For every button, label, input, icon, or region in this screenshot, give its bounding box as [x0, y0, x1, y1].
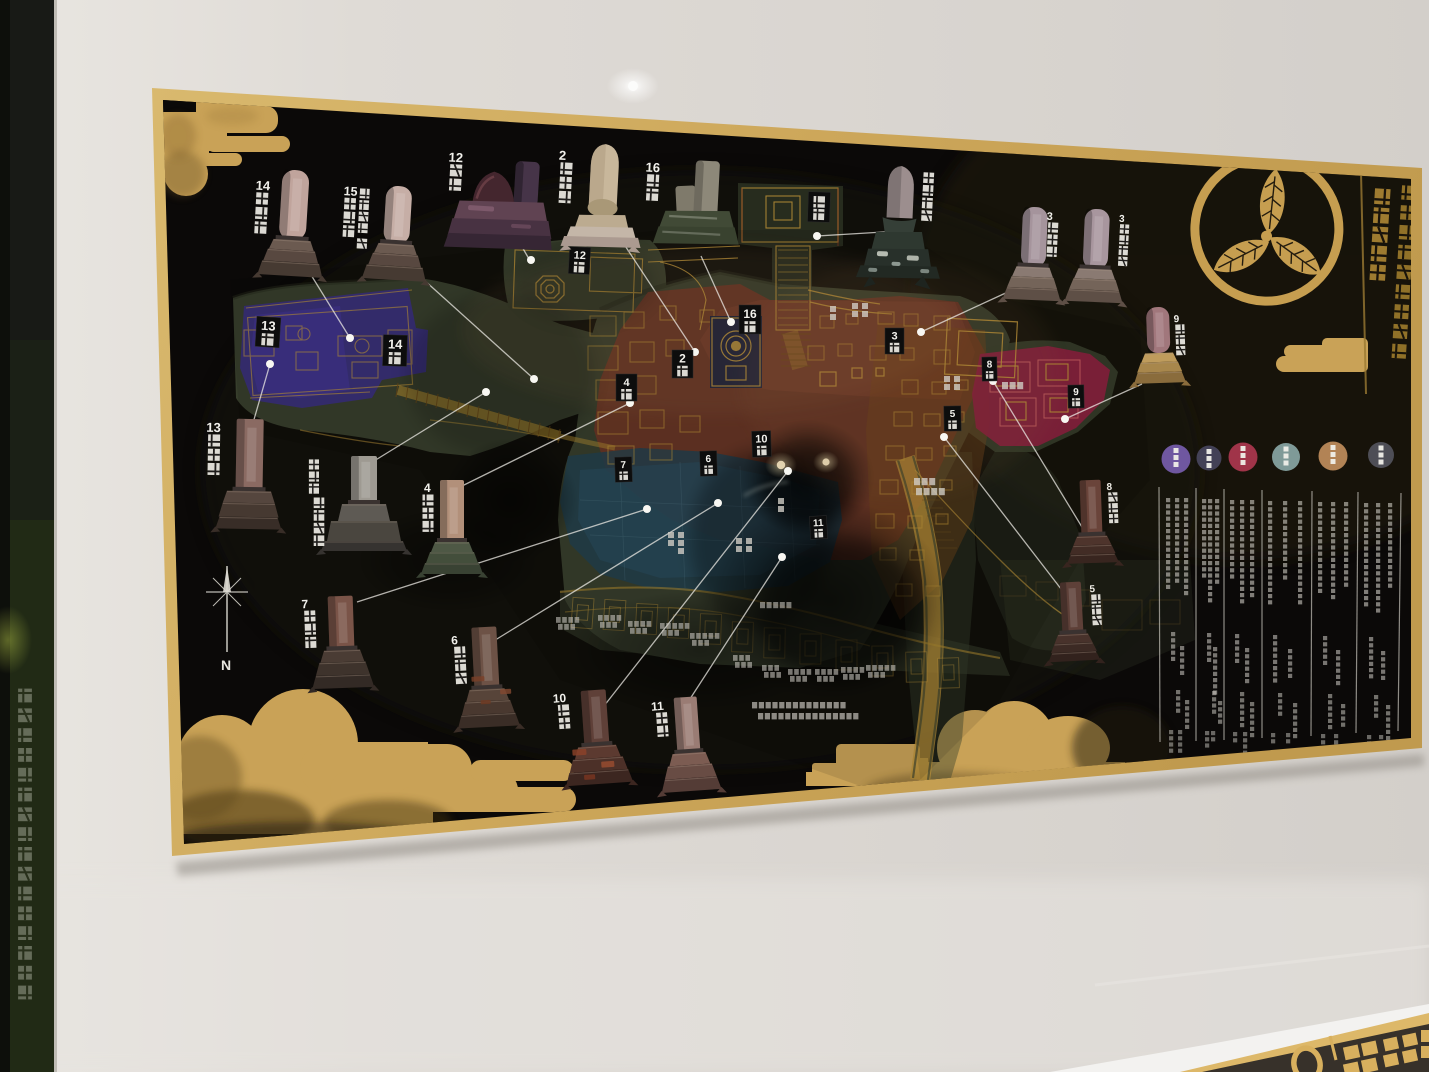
svg-text:6: 6: [705, 454, 711, 465]
svg-text:10: 10: [755, 433, 768, 445]
svg-text:16: 16: [645, 160, 660, 176]
svg-text:14: 14: [388, 336, 404, 352]
svg-text:2: 2: [679, 351, 686, 365]
svg-text:14: 14: [255, 178, 271, 194]
svg-text:5: 5: [1089, 584, 1096, 595]
svg-text:13: 13: [206, 420, 221, 435]
svg-text:10: 10: [552, 691, 567, 706]
svg-text:3: 3: [1119, 214, 1126, 225]
svg-text:11: 11: [813, 518, 825, 530]
svg-text:11: 11: [651, 699, 665, 714]
svg-text:12: 12: [448, 150, 463, 166]
svg-text:7: 7: [301, 597, 308, 611]
svg-text:8: 8: [1106, 482, 1112, 493]
svg-text:16: 16: [743, 307, 757, 321]
svg-text:3: 3: [891, 330, 897, 342]
svg-text:4: 4: [424, 481, 431, 495]
svg-text:7: 7: [620, 460, 626, 471]
svg-text:8: 8: [987, 360, 993, 371]
svg-text:6: 6: [451, 633, 459, 647]
svg-text:12: 12: [573, 250, 586, 263]
svg-text:15: 15: [343, 184, 358, 199]
svg-text:13: 13: [261, 318, 276, 334]
svg-text:5: 5: [950, 409, 956, 420]
svg-text:9: 9: [1073, 387, 1079, 398]
svg-text:3: 3: [1046, 211, 1053, 223]
svg-text:2: 2: [559, 148, 567, 163]
svg-text:9: 9: [1173, 314, 1179, 325]
svg-text:4: 4: [623, 377, 630, 389]
svg-text:N: N: [221, 657, 231, 673]
